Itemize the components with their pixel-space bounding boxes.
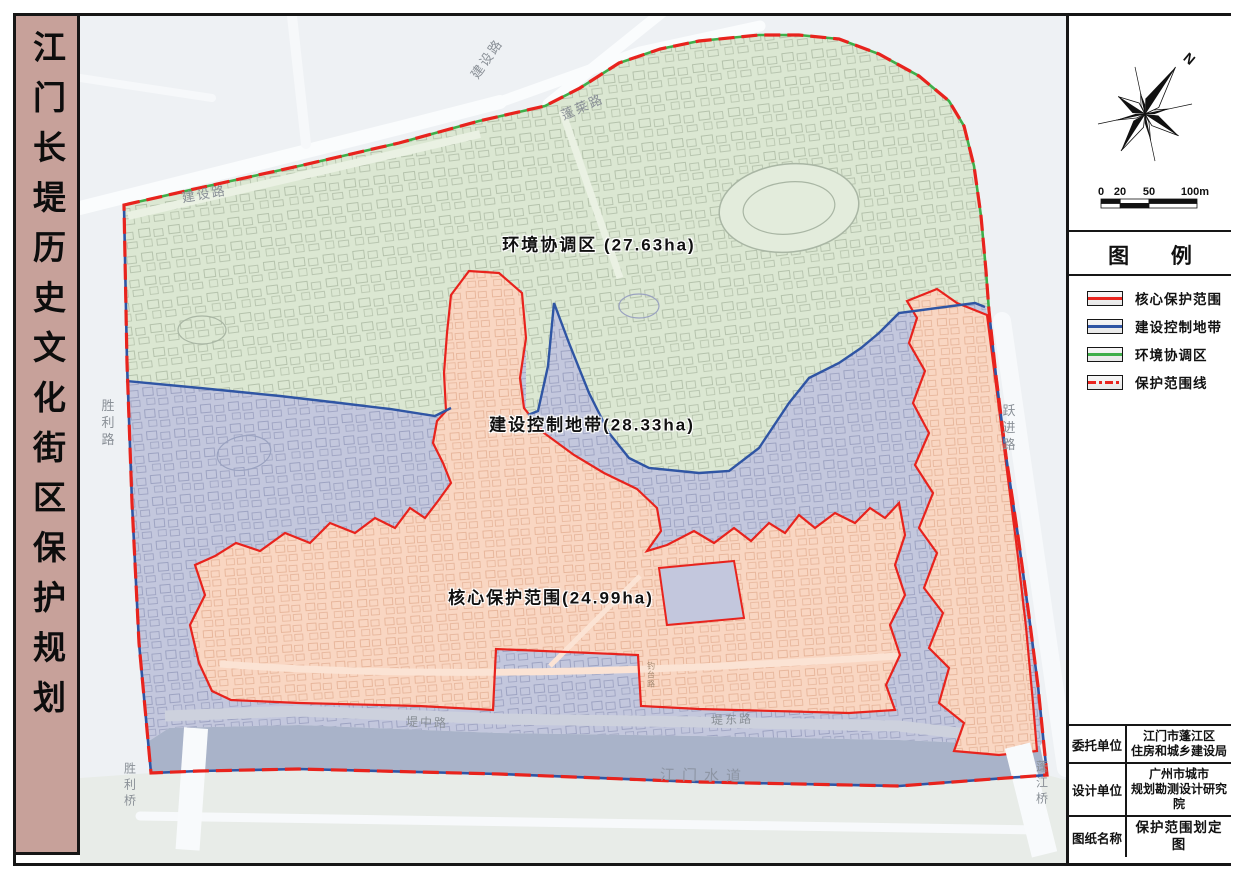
legend-sidebar: N 0 20 50 100m: [1066, 16, 1231, 863]
map-canvas: 环境协调区 (27.63ha) 建设控制地带(28.33ha) 核心保护范围(2…: [80, 16, 1066, 863]
legend-rule-top: [1069, 230, 1231, 232]
scale-tick-0: 0: [1098, 186, 1104, 198]
info-row-client: 委托单位 江门市蓬江区 住房和城乡建设局: [1069, 726, 1231, 764]
info-table: 委托单位 江门市蓬江区 住房和城乡建设局 设计单位 广州市城市 规划勘测设计研究…: [1069, 724, 1231, 857]
info-value-drawing-name: 保护范围划定图: [1127, 817, 1231, 857]
sheet-frame: 江门长堤历史文化街区保护规划: [13, 13, 1231, 866]
scale-bar: 0 20 50 100m: [1091, 184, 1211, 218]
legend-swatch-core: [1087, 291, 1123, 306]
info-label-client: 委托单位: [1069, 726, 1127, 762]
legend-label-boundary: 保护范围线: [1135, 372, 1208, 392]
scale-tick-100: 100m: [1181, 186, 1209, 198]
legend-label-core: 核心保护范围: [1135, 288, 1222, 308]
map-drawing: [80, 16, 1066, 863]
page-title: 江门长堤历史文化街区保护规划: [23, 30, 71, 852]
info-value-client: 江门市蓬江区 住房和城乡建设局: [1127, 726, 1231, 762]
info-value-designer: 广州市城市 规划勘测设计研究院: [1127, 764, 1231, 815]
legend-label-coordination: 环境协调区: [1135, 344, 1208, 364]
info-row-designer: 设计单位 广州市城市 规划勘测设计研究院: [1069, 764, 1231, 817]
scale-tick-20: 20: [1114, 186, 1126, 198]
legend-title: 图 例: [1069, 240, 1231, 270]
legend-item-coordination: 环境协调区: [1087, 344, 1208, 364]
legend-swatch-control: [1087, 319, 1123, 334]
info-value-client-line2: 住房和城乡建设局: [1131, 744, 1227, 759]
info-label-drawing-name: 图纸名称: [1069, 817, 1127, 857]
info-value-designer-line1: 广州市城市: [1149, 767, 1209, 782]
legend-item-control: 建设控制地带: [1087, 316, 1222, 336]
legend-swatch-coordination: [1087, 347, 1123, 362]
legend-item-boundary: 保护范围线: [1087, 372, 1208, 392]
info-value-client-line1: 江门市蓬江区: [1143, 729, 1215, 744]
info-value-designer-line2: 规划勘测设计研究院: [1129, 782, 1229, 812]
north-letter: N: [1181, 49, 1199, 68]
legend-rule-bottom: [1069, 274, 1231, 276]
info-label-designer: 设计单位: [1069, 764, 1127, 815]
plan-sheet: 江门长堤历史文化街区保护规划: [0, 0, 1244, 880]
info-row-drawing-name: 图纸名称 保护范围划定图: [1069, 817, 1231, 857]
control-pocket: [659, 561, 744, 625]
title-bar: 江门长堤历史文化街区保护规划: [16, 16, 80, 855]
legend-item-core: 核心保护范围: [1087, 288, 1222, 308]
legend-swatch-boundary: [1087, 375, 1123, 390]
legend-label-control: 建设控制地带: [1135, 316, 1222, 336]
north-arrow: N: [1087, 26, 1213, 176]
info-value-drawing-name-line1: 保护范围划定图: [1129, 820, 1229, 854]
scale-tick-50: 50: [1143, 186, 1155, 198]
